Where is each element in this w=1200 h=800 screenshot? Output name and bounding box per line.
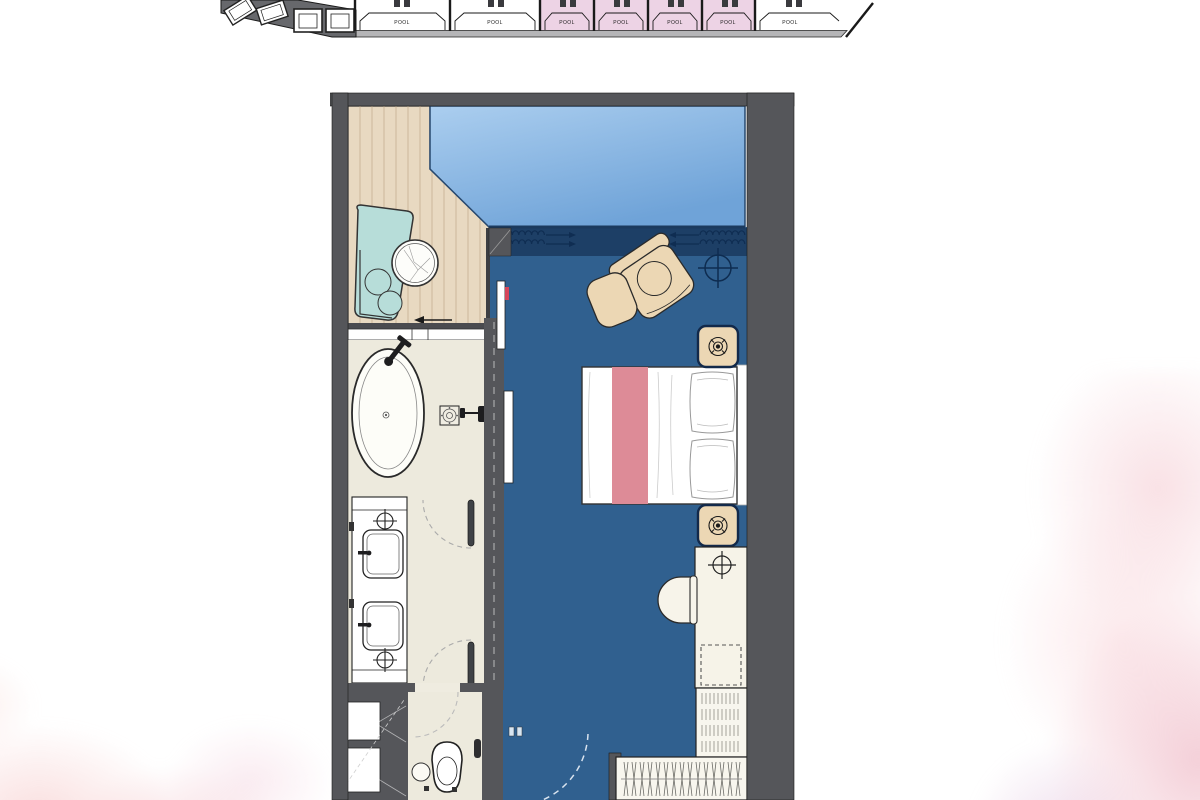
louver-cabinet <box>696 688 747 757</box>
floor-drain-icon <box>440 406 459 425</box>
key-plan-room-label: POOL <box>667 20 683 26</box>
deck-window-sill <box>348 323 489 340</box>
wc-wall <box>332 683 487 692</box>
unit-floor-plan <box>330 90 797 800</box>
bathtub <box>352 349 424 477</box>
key-plan-service-wing <box>221 0 356 37</box>
wc-door-opening <box>415 683 460 692</box>
key-plan-room-label: POOL <box>394 20 410 26</box>
nightstand <box>698 326 738 367</box>
key-plan-room-label: POOL <box>487 20 503 26</box>
elevator-box <box>326 9 354 32</box>
sliding-door-panel <box>497 281 505 349</box>
deck-side-table <box>392 240 438 286</box>
vanity-counter <box>349 497 407 683</box>
wall-top <box>330 93 794 106</box>
watercolor-splash-right <box>870 370 1200 800</box>
floor-plan-page: POOL POOL POOL POOL POOL POOL POOL <box>0 0 1200 800</box>
key-plan: POOL POOL POOL POOL POOL POOL POOL <box>218 0 878 42</box>
key-plan-room-label: POOL <box>613 20 629 26</box>
headboard <box>737 365 747 505</box>
wardrobe <box>609 753 747 800</box>
bed <box>582 365 747 505</box>
private-pool <box>430 106 745 227</box>
key-plan-room-label: POOL <box>782 20 798 26</box>
key-plan-parapet-band <box>353 31 847 38</box>
slider-marker <box>505 287 509 300</box>
elevator-box <box>294 9 322 32</box>
wall-left <box>332 93 348 800</box>
nightstand <box>698 505 738 546</box>
wall-right <box>747 93 794 800</box>
waste-bin <box>412 763 430 781</box>
window-wall-line <box>489 226 745 229</box>
curtain-shadow-band <box>489 228 747 256</box>
sliding-door-panel <box>504 391 513 483</box>
desk-nook <box>695 547 747 688</box>
sink <box>358 530 403 578</box>
key-plan-room-label: POOL <box>559 20 575 26</box>
door-leaf <box>468 500 474 546</box>
bed-runner <box>612 367 648 504</box>
wc-door-handle <box>474 739 481 758</box>
sink <box>358 602 403 650</box>
key-plan-room-label: POOL <box>720 20 736 26</box>
watercolor-splash-left <box>0 590 370 800</box>
door-leaf <box>468 642 474 688</box>
